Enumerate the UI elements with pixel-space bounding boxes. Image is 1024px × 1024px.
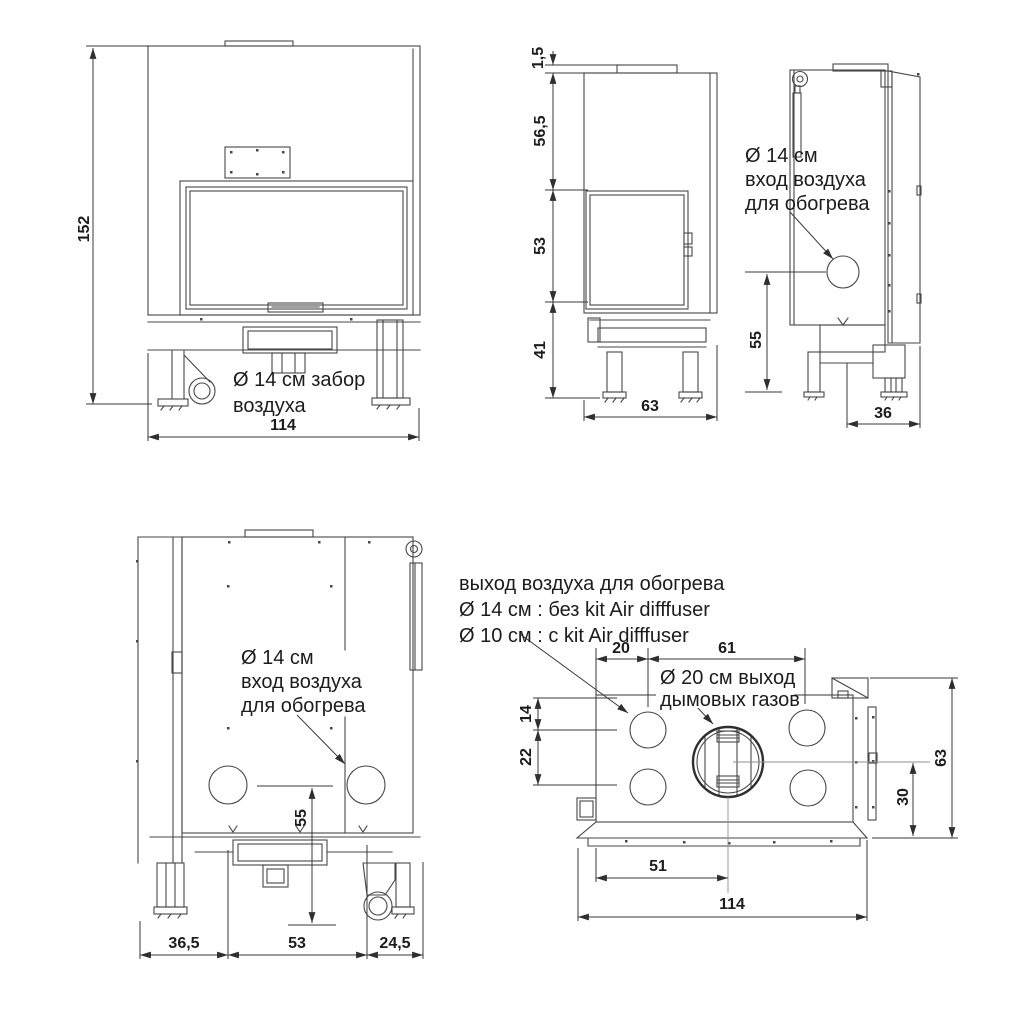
rear-side-view-screws xyxy=(888,73,920,313)
rear-side-air-inlet-note-line2: вход воздуха xyxy=(745,169,867,191)
rear-side-view: Ø 14 см вход воздуха для обогрева 55 36 xyxy=(745,64,921,428)
flue-note-line1: Ø 20 см выход xyxy=(660,667,796,689)
side-upper-dim-label: 14 xyxy=(518,705,535,723)
top-view: выход воздуха для обогрева Ø 14 см : без… xyxy=(459,573,958,921)
side-collar-dim-label: 1,5 xyxy=(530,47,547,69)
side-door-dim-label: 53 xyxy=(532,237,549,255)
rear-side-air-inlet-note-line1: Ø 14 см xyxy=(745,145,818,167)
rear-side-view-linework xyxy=(790,64,921,400)
rear-air-inlet-note-line1: Ø 14 см xyxy=(241,647,314,669)
side-hood-dim-label: 56,5 xyxy=(532,115,549,146)
front-view-linework xyxy=(148,41,420,410)
rear-inlet-height-dim-label: 55 xyxy=(293,809,310,827)
side-lower-dim-label: 22 xyxy=(518,748,535,766)
top-right-dim-label: 61 xyxy=(718,640,736,657)
rear-air-inlet-note-line2: вход воздуха xyxy=(241,671,363,693)
front-view: 152 114 Ø 14 см забор воздуха xyxy=(76,41,420,441)
side-base-dim-label: 41 xyxy=(532,341,549,359)
front-view-screws xyxy=(200,149,353,321)
rear-side-inlet-height-dim-label: 55 xyxy=(748,331,765,349)
bottom-inner-dim-label: 51 xyxy=(649,858,667,875)
rear-side-view-dimensions xyxy=(745,212,920,428)
rear-right-dim-label: 24,5 xyxy=(379,935,410,952)
top-outlet-note-line3: Ø 10 см : с kit Air difffuser xyxy=(459,625,689,647)
technical-drawing-page: 152 114 Ø 14 см забор воздуха xyxy=(0,0,1024,1024)
side-view-linework xyxy=(584,65,717,402)
front-width-dim-label: 114 xyxy=(270,417,296,434)
right-total-dim-label: 63 xyxy=(933,749,950,767)
side-view: 1,5 56,5 53 41 63 xyxy=(530,47,717,421)
front-height-dim-label: 152 xyxy=(76,216,93,243)
bottom-total-dim-label: 114 xyxy=(719,896,745,913)
front-air-intake-note-line2: воздуха xyxy=(233,395,306,417)
right-inner-dim-label: 30 xyxy=(895,788,912,806)
top-outlet-note-line1: выход воздуха для обогрева xyxy=(459,573,725,595)
rear-view: Ø 14 см вход воздуха для обогрева 55 36,… xyxy=(136,530,423,959)
front-air-intake-note-line1: Ø 14 см забор xyxy=(233,369,365,391)
rear-side-offset-dim-label: 36 xyxy=(874,405,892,422)
rear-left-dim-label: 36,5 xyxy=(168,935,199,952)
rear-air-inlet-note-line3: для обогрева xyxy=(241,695,366,717)
rear-center-dim-label: 53 xyxy=(288,935,306,952)
rear-side-air-inlet-note-line3: для обогрева xyxy=(745,193,870,215)
top-outlet-note-line2: Ø 14 см : без kit Air difffuser xyxy=(459,599,710,621)
rear-view-linework xyxy=(138,530,422,920)
flue-note-line2: дымовых газов xyxy=(660,689,800,711)
side-view-dimensions xyxy=(545,51,717,421)
fireplace-dimension-drawing: 152 114 Ø 14 см забор воздуха xyxy=(0,0,1024,1024)
side-depth-dim-label: 63 xyxy=(641,398,659,415)
top-left-dim-label: 20 xyxy=(612,640,630,657)
